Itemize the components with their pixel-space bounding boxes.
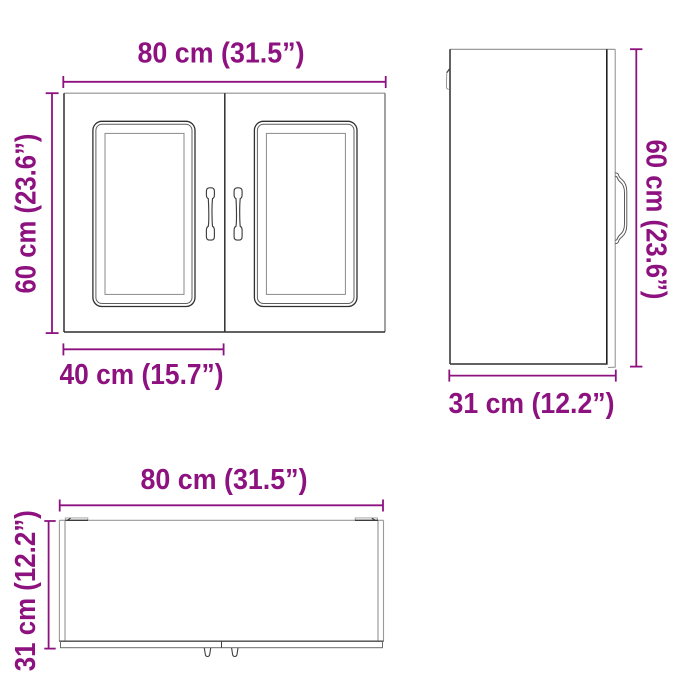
svg-text:60 cm (23.6”): 60 cm (23.6”) [11, 134, 43, 294]
svg-text:40 cm (15.7”): 40 cm (15.7”) [60, 359, 224, 391]
svg-text:31 cm (12.2”): 31 cm (12.2”) [449, 388, 615, 420]
svg-text:80 cm (31.5”): 80 cm (31.5”) [141, 464, 308, 496]
svg-text:31 cm (12.2”): 31 cm (12.2”) [10, 510, 42, 671]
svg-text:60 cm (23.6”): 60 cm (23.6”) [640, 140, 672, 300]
svg-text:80 cm (31.5”): 80 cm (31.5”) [138, 37, 305, 69]
